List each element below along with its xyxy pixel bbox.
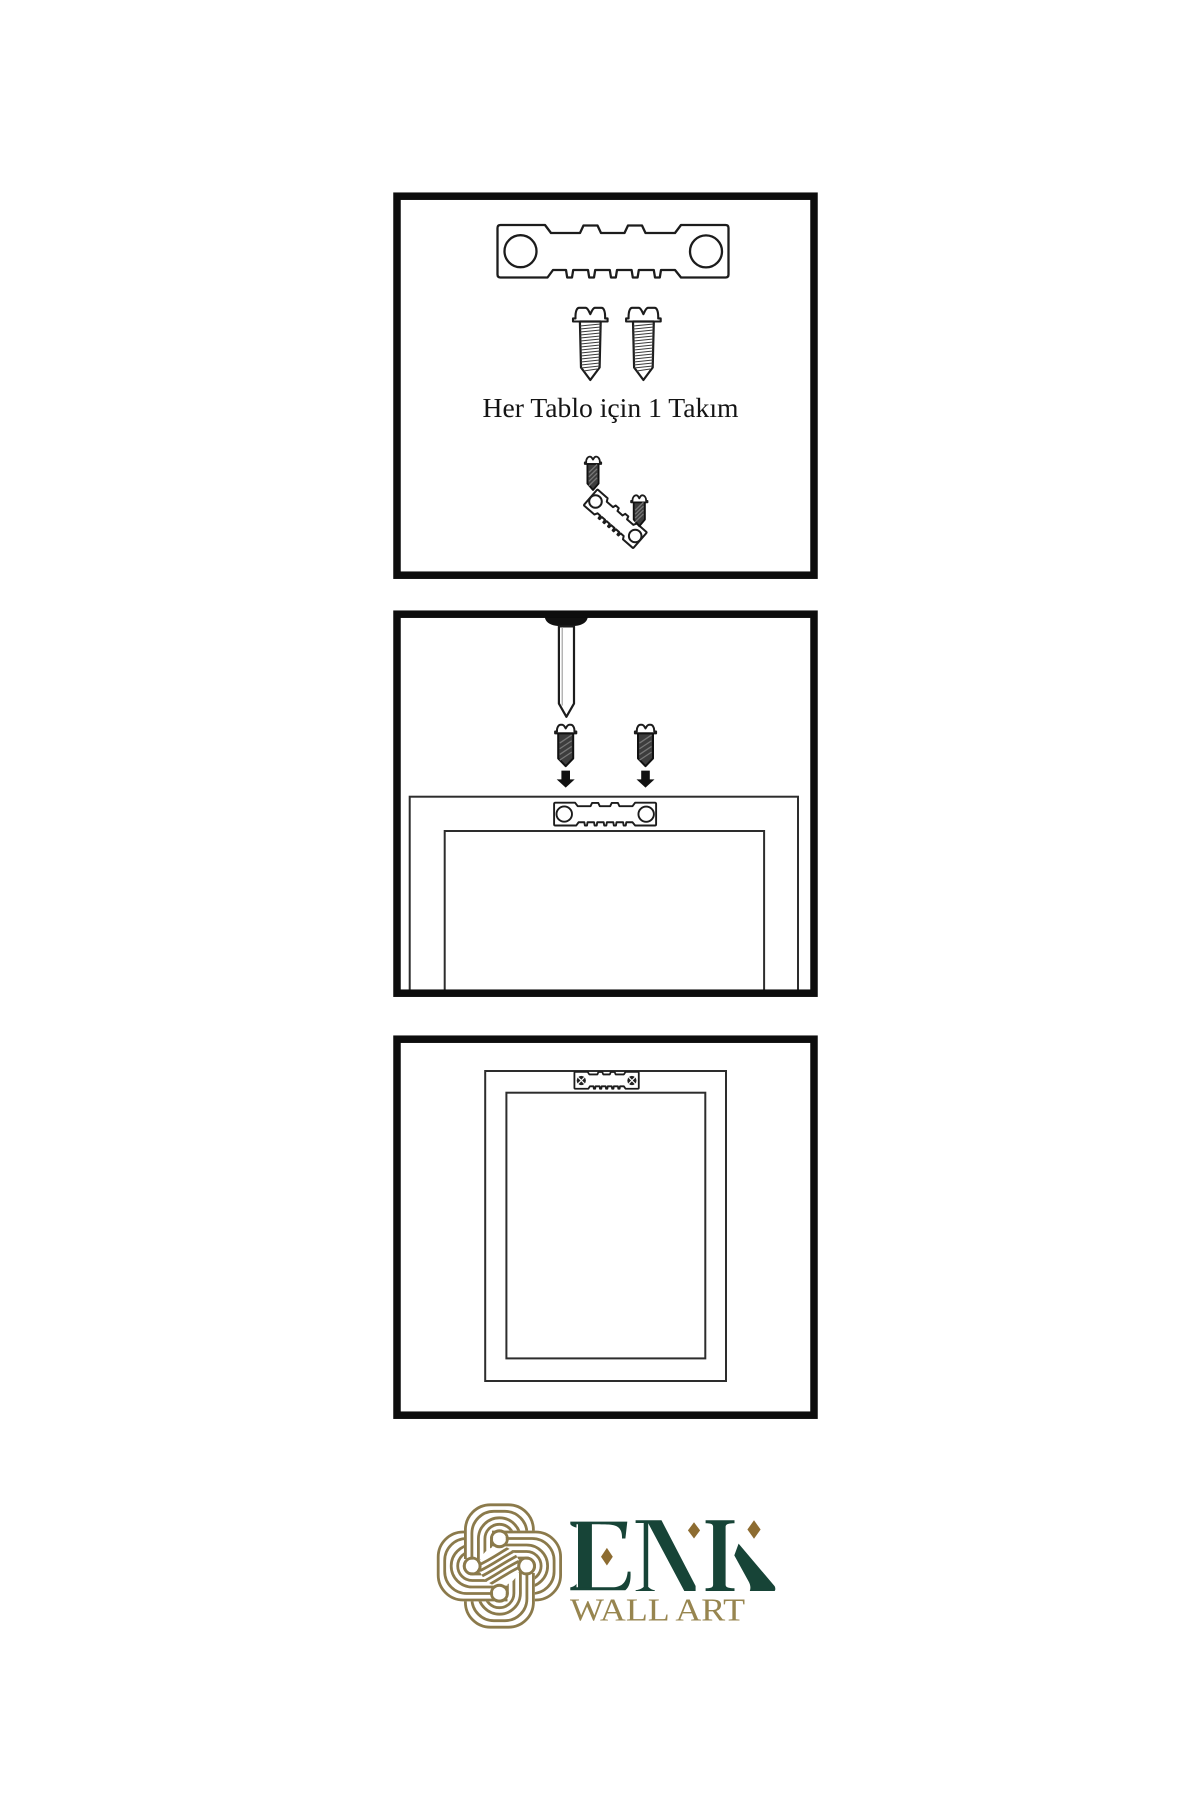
svg-text:WALL ART: WALL ART (570, 1591, 746, 1627)
svg-text:Her Tablo için 1 Takım: Her Tablo için 1 Takım (483, 393, 739, 423)
